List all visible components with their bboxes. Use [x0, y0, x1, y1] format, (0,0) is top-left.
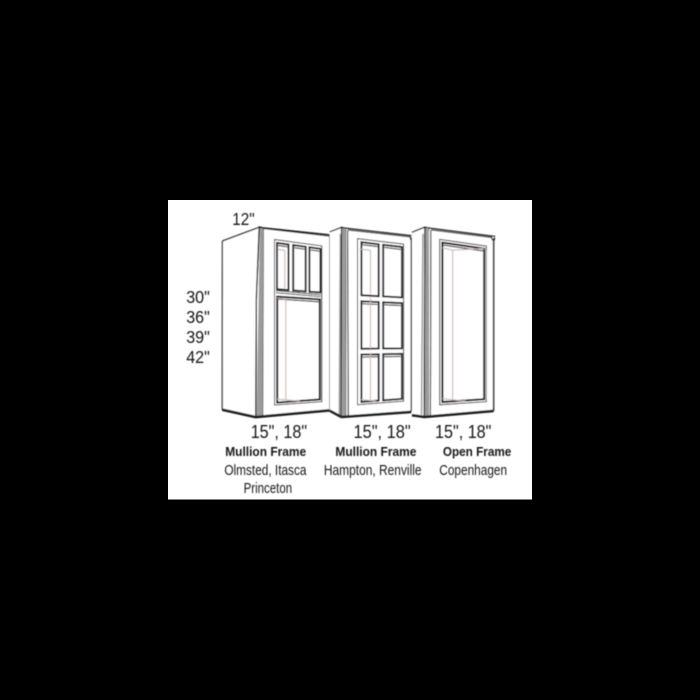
svg-text:Hampton, Renville: Hampton, Renville: [324, 462, 422, 479]
svg-text:15", 18": 15", 18": [354, 422, 411, 442]
svg-text:36": 36": [186, 307, 210, 327]
svg-text:Olmsted, Itasca: Olmsted, Itasca: [224, 462, 307, 479]
svg-text:Open Frame: Open Frame: [443, 444, 512, 459]
svg-text:39": 39": [186, 327, 210, 347]
svg-text:Copenhagen: Copenhagen: [439, 462, 507, 479]
svg-text:Mullion Frame: Mullion Frame: [335, 444, 416, 459]
svg-text:Princeton: Princeton: [244, 480, 293, 497]
svg-text:15", 18": 15", 18": [251, 422, 307, 442]
svg-text:30": 30": [186, 287, 210, 307]
svg-text:15", 18": 15", 18": [435, 422, 491, 442]
svg-text:42": 42": [186, 347, 210, 367]
svg-text:Mullion Frame: Mullion Frame: [225, 444, 306, 459]
svg-text:12": 12": [232, 209, 254, 229]
